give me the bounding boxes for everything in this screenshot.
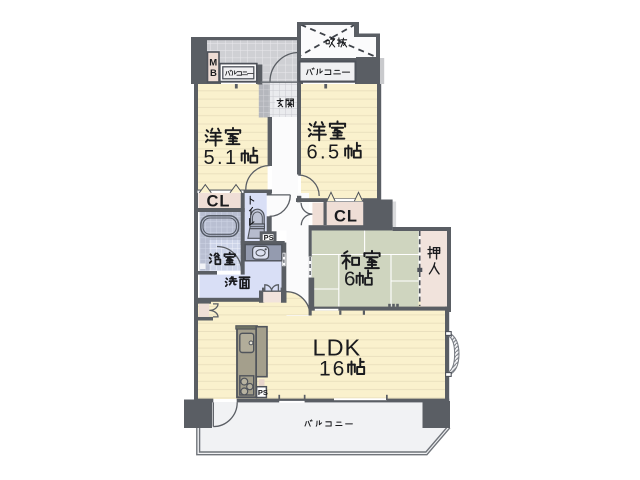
svg-text:PS: PS: [258, 388, 268, 397]
svg-text:M: M: [209, 58, 217, 69]
svg-text:6: 6: [344, 268, 355, 291]
svg-text:5.1: 5.1: [204, 147, 239, 169]
svg-text:16: 16: [319, 358, 346, 381]
svg-text:B: B: [210, 68, 217, 79]
svg-text:6.5: 6.5: [307, 142, 342, 164]
svg-text:CL: CL: [207, 193, 231, 211]
svg-text:CL: CL: [334, 208, 358, 226]
svg-text:PS: PS: [264, 233, 274, 242]
